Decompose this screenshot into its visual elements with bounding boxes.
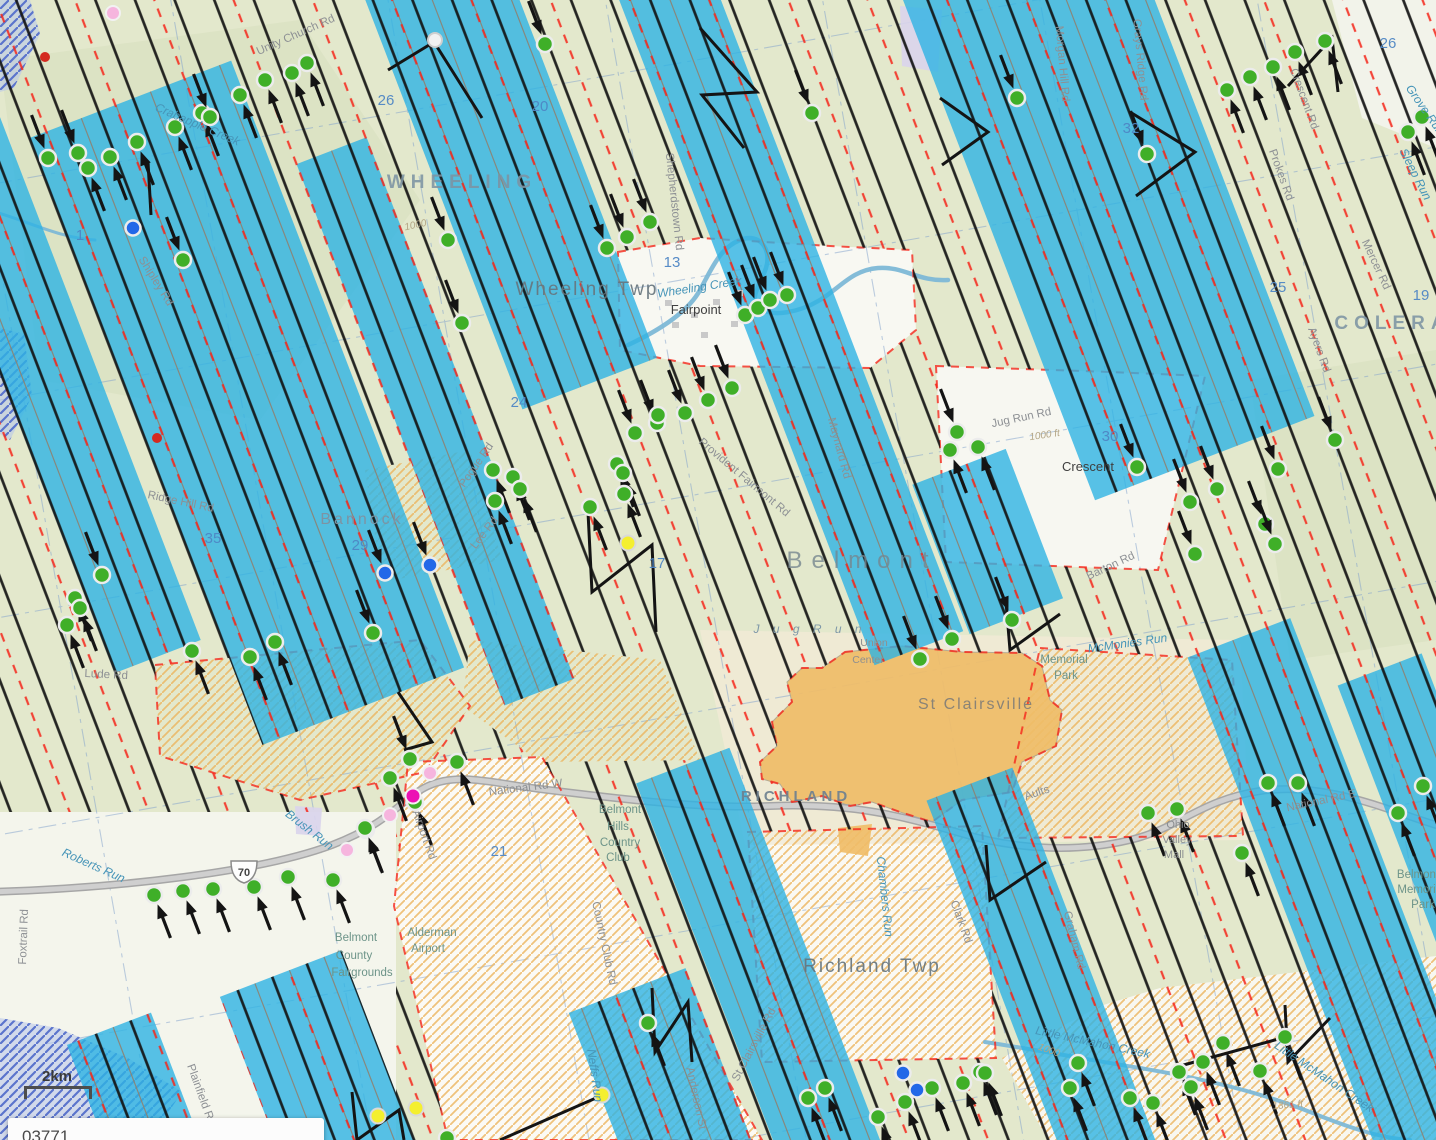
blue-waypoint-marker[interactable] — [910, 1083, 925, 1098]
green-waypoint-marker[interactable] — [804, 105, 820, 121]
map-label: Club — [606, 852, 630, 864]
green-waypoint-marker[interactable] — [1290, 775, 1306, 791]
green-waypoint-marker[interactable] — [537, 36, 553, 52]
green-waypoint-marker[interactable] — [897, 1094, 913, 1110]
green-waypoint-marker[interactable] — [512, 481, 528, 497]
map-label: RICHLAND — [741, 788, 851, 805]
green-waypoint-marker[interactable] — [267, 634, 283, 650]
map-label: Airport — [411, 943, 446, 955]
building — [672, 322, 679, 328]
map-label: Belmont — [1397, 869, 1436, 881]
green-waypoint-marker[interactable] — [80, 160, 96, 176]
green-waypoint-marker[interactable] — [1327, 432, 1343, 448]
map-label: Lude Rd — [84, 668, 128, 682]
green-waypoint-marker[interactable] — [1183, 1079, 1199, 1095]
magenta-waypoint-marker[interactable] — [406, 789, 421, 804]
section-number: 30 — [1102, 428, 1119, 445]
green-waypoint-marker[interactable] — [1209, 481, 1225, 497]
map-label: Mall — [1164, 849, 1184, 861]
map-label: Belmont — [786, 547, 937, 574]
map-label: Union — [860, 637, 888, 649]
section-number: 26 — [378, 92, 395, 109]
green-waypoint-marker[interactable] — [582, 499, 598, 515]
green-waypoint-marker[interactable] — [205, 881, 221, 897]
blue-waypoint-marker[interactable] — [423, 558, 438, 573]
green-waypoint-marker[interactable] — [977, 1065, 993, 1081]
building — [731, 321, 738, 327]
green-waypoint-marker[interactable] — [1242, 69, 1258, 85]
section-number: 26 — [1380, 35, 1397, 52]
green-waypoint-marker[interactable] — [280, 869, 296, 885]
green-waypoint-marker[interactable] — [1219, 82, 1235, 98]
green-waypoint-marker[interactable] — [365, 625, 381, 641]
map-label: Alderman — [407, 927, 456, 939]
section-number: 35 — [205, 530, 222, 547]
pink-waypoint-marker[interactable] — [340, 843, 354, 857]
section-number: 17 — [649, 555, 666, 572]
map-label: Belmont — [599, 804, 642, 816]
green-waypoint-marker[interactable] — [640, 1015, 656, 1031]
map-label: Hills — [607, 821, 629, 833]
green-waypoint-marker[interactable] — [650, 407, 666, 423]
yellow-waypoint-marker[interactable] — [621, 536, 636, 551]
section-number: 21 — [491, 843, 508, 860]
green-waypoint-marker[interactable] — [299, 55, 315, 71]
green-waypoint-marker[interactable] — [779, 287, 795, 303]
green-waypoint-marker[interactable] — [325, 872, 341, 888]
green-waypoint-marker[interactable] — [1004, 612, 1020, 628]
green-waypoint-marker[interactable] — [1234, 845, 1250, 861]
green-waypoint-marker[interactable] — [700, 392, 716, 408]
map-label: Fairpoint — [671, 302, 722, 317]
green-waypoint-marker[interactable] — [439, 1130, 455, 1140]
green-waypoint-marker[interactable] — [454, 315, 470, 331]
green-waypoint-marker[interactable] — [146, 887, 162, 903]
map-label: Valley — [1162, 834, 1192, 846]
green-waypoint-marker[interactable] — [942, 442, 958, 458]
green-waypoint-marker[interactable] — [59, 617, 75, 633]
green-waypoint-marker[interactable] — [94, 567, 110, 583]
building — [701, 332, 708, 338]
map-label: Country — [600, 837, 641, 849]
green-waypoint-marker[interactable] — [449, 754, 465, 770]
green-waypoint-marker[interactable] — [382, 770, 398, 786]
map-label: Memorial — [1397, 884, 1436, 896]
map-label: Park — [1054, 670, 1078, 682]
map-label: Foxtrail Rd — [17, 909, 31, 965]
green-waypoint-marker[interactable] — [242, 649, 258, 665]
green-waypoint-marker[interactable] — [1287, 44, 1303, 60]
pink-waypoint-marker[interactable] — [423, 766, 437, 780]
map-label: WHEELING — [387, 172, 537, 193]
green-waypoint-marker[interactable] — [817, 1080, 833, 1096]
map-label: Wheeling Twp — [516, 279, 659, 300]
green-waypoint-marker[interactable] — [1252, 1063, 1268, 1079]
green-waypoint-marker[interactable] — [1265, 59, 1281, 75]
green-waypoint-marker[interactable] — [1009, 90, 1025, 106]
map-label: St Clairsville — [918, 696, 1034, 713]
green-waypoint-marker[interactable] — [944, 631, 960, 647]
green-waypoint-marker[interactable] — [102, 149, 118, 165]
green-waypoint-marker[interactable] — [402, 751, 418, 767]
map-label: Park — [1411, 899, 1435, 911]
green-waypoint-marker[interactable] — [284, 65, 300, 81]
scale-bar-bracket — [24, 1086, 92, 1099]
green-waypoint-marker[interactable] — [599, 240, 615, 256]
green-waypoint-marker[interactable] — [955, 1075, 971, 1091]
blue-waypoint-marker[interactable] — [896, 1066, 911, 1081]
green-waypoint-marker[interactable] — [1215, 1035, 1231, 1051]
green-waypoint-marker[interactable] — [762, 292, 778, 308]
red-waypoint-marker[interactable] — [152, 433, 162, 443]
green-waypoint-marker[interactable] — [1171, 1064, 1187, 1080]
green-waypoint-marker[interactable] — [257, 72, 273, 88]
map-label: Crescent — [1062, 459, 1114, 474]
info-box-text: 03771 — [22, 1127, 69, 1140]
section-number: 32 — [1123, 120, 1140, 137]
green-waypoint-marker[interactable] — [1182, 494, 1198, 510]
section-number: 20 — [532, 98, 549, 115]
green-waypoint-marker[interactable] — [1070, 1055, 1086, 1071]
map-label: County — [336, 950, 373, 962]
green-waypoint-marker[interactable] — [1260, 775, 1276, 791]
map-label: Ohio — [1166, 819, 1189, 831]
blue-waypoint-marker[interactable] — [126, 221, 141, 236]
green-waypoint-marker[interactable] — [129, 134, 145, 150]
green-waypoint-marker[interactable] — [440, 232, 456, 248]
green-waypoint-marker[interactable] — [232, 87, 248, 103]
green-waypoint-marker[interactable] — [642, 214, 658, 230]
green-waypoint-marker[interactable] — [485, 462, 501, 478]
coordinate-info-box[interactable]: 03771 — [8, 1118, 324, 1140]
green-waypoint-marker[interactable] — [616, 486, 632, 502]
map-label: Richland Twp — [803, 956, 941, 977]
green-waypoint-marker[interactable] — [970, 439, 986, 455]
green-waypoint-marker[interactable] — [1400, 124, 1416, 140]
green-waypoint-marker[interactable] — [1122, 1090, 1138, 1106]
map-label: Center — [852, 654, 884, 666]
map-canvas[interactable]: 70WHEELINGCOLERAINRICHLANDBelmontWheelin… — [0, 0, 1436, 1140]
green-waypoint-marker[interactable] — [1187, 546, 1203, 562]
scale-bar: 2km — [20, 1068, 92, 1099]
map-label: Memorial — [1040, 654, 1087, 666]
pink-waypoint-marker[interactable] — [106, 6, 120, 20]
green-waypoint-marker[interactable] — [175, 883, 191, 899]
green-waypoint-marker[interactable] — [949, 424, 965, 440]
section-number: 29 — [352, 537, 369, 554]
section-number: 24 — [511, 394, 528, 411]
yellow-waypoint-marker[interactable] — [409, 1101, 424, 1116]
green-waypoint-marker[interactable] — [70, 145, 86, 161]
section-number: 25 — [1270, 279, 1287, 296]
green-waypoint-marker[interactable] — [1062, 1080, 1078, 1096]
map-label: Bannock — [320, 511, 403, 528]
scale-bar-label: 2km — [42, 1068, 92, 1085]
map-label: J u g R u n — [752, 622, 866, 636]
green-waypoint-marker[interactable] — [1270, 461, 1286, 477]
green-waypoint-marker[interactable] — [615, 465, 631, 481]
green-waypoint-marker[interactable] — [40, 150, 56, 166]
i70-shield-label: 70 — [238, 867, 250, 879]
green-waypoint-marker[interactable] — [1139, 146, 1155, 162]
map-svg[interactable]: 70WHEELINGCOLERAINRICHLANDBelmontWheelin… — [0, 0, 1436, 1140]
green-waypoint-marker[interactable] — [1390, 805, 1406, 821]
map-label: Fairgrounds — [331, 967, 393, 979]
green-waypoint-marker[interactable] — [800, 1090, 816, 1106]
green-waypoint-marker[interactable] — [1267, 536, 1283, 552]
green-waypoint-marker[interactable] — [1415, 778, 1431, 794]
green-waypoint-marker[interactable] — [912, 651, 928, 667]
yellow-waypoint-marker[interactable] — [371, 1109, 386, 1124]
section-number: 13 — [664, 254, 681, 271]
section-number: 1 — [76, 227, 84, 244]
section-number: 19 — [1413, 287, 1430, 304]
green-waypoint-marker[interactable] — [1140, 805, 1156, 821]
green-waypoint-marker[interactable] — [870, 1109, 886, 1125]
green-waypoint-marker[interactable] — [1195, 1054, 1211, 1070]
map-label: COLERAIN — [1334, 313, 1436, 334]
green-waypoint-marker[interactable] — [677, 405, 693, 421]
green-waypoint-marker[interactable] — [1145, 1095, 1161, 1111]
white-waypoint-marker[interactable] — [428, 33, 442, 47]
green-waypoint-marker[interactable] — [1129, 459, 1145, 475]
green-waypoint-marker[interactable] — [357, 820, 373, 836]
green-waypoint-marker[interactable] — [184, 643, 200, 659]
pink-waypoint-marker[interactable] — [383, 808, 397, 822]
green-waypoint-marker[interactable] — [1169, 801, 1185, 817]
green-waypoint-marker[interactable] — [1317, 33, 1333, 49]
red-waypoint-marker[interactable] — [40, 52, 50, 62]
green-waypoint-marker[interactable] — [175, 252, 191, 268]
green-waypoint-marker[interactable] — [627, 425, 643, 441]
green-waypoint-marker[interactable] — [924, 1080, 940, 1096]
green-waypoint-marker[interactable] — [619, 229, 635, 245]
map-label: Belmont — [335, 932, 378, 944]
blue-waypoint-marker[interactable] — [378, 566, 393, 581]
green-waypoint-marker[interactable] — [724, 380, 740, 396]
green-waypoint-marker[interactable] — [72, 600, 88, 616]
green-waypoint-marker[interactable] — [487, 493, 503, 509]
